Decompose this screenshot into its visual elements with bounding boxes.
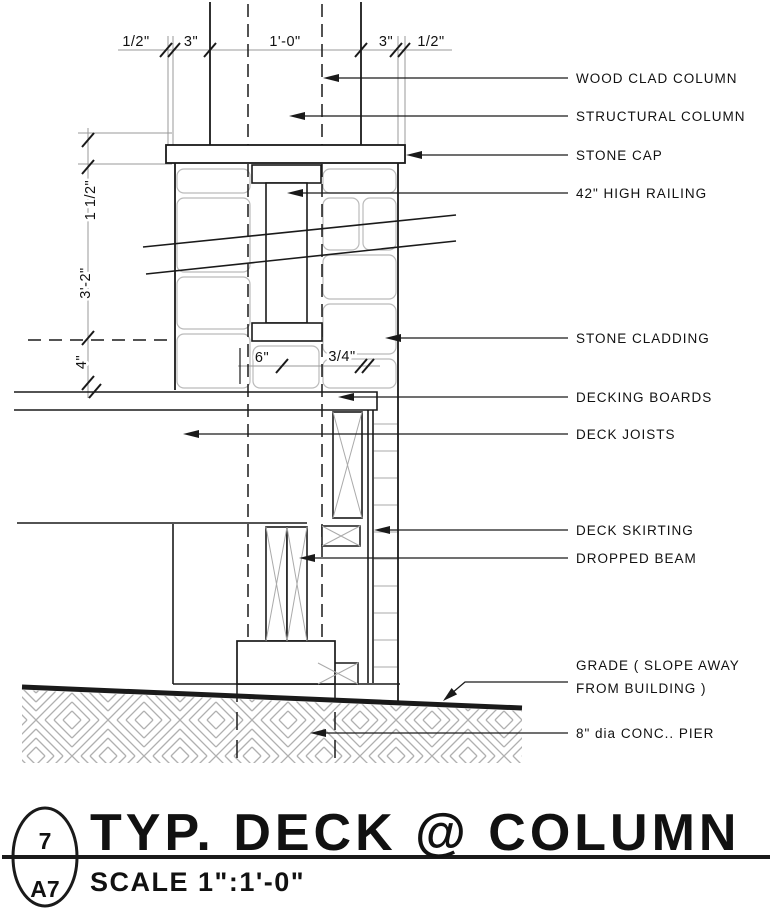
callout-conc-pier: 8" dia CONC.. PIER <box>576 726 714 741</box>
dim-left-four: 4" <box>74 355 90 369</box>
railing-post <box>266 183 307 323</box>
dim-top-three-right: 3" <box>379 34 393 50</box>
callout-wood-clad-column: WOOD CLAD COLUMN <box>576 71 738 86</box>
sheet-number: A7 <box>30 876 59 902</box>
callout-stone-cap: STONE CAP <box>576 148 663 163</box>
dim-top-half-inch-right: 1/2" <box>417 34 444 50</box>
callout-grade-line2: FROM BUILDING ) <box>576 681 707 696</box>
callout-dropped-beam: DROPPED BEAM <box>576 551 697 566</box>
stone-cap-section <box>166 145 405 163</box>
dim-mid-six: 6" <box>255 350 269 366</box>
drawing-scale: SCALE 1":1'-0" <box>90 867 305 897</box>
callout-deck-joists: DECK JOISTS <box>576 427 676 442</box>
railing-top-rail <box>252 165 321 183</box>
dim-left-three-two: 3'-2" <box>78 267 94 298</box>
dim-top-half-inch-left: 1/2" <box>122 34 149 50</box>
dimension-labels: 1/2" 3" 1'-0" 3" 1/2" 1 1/2" 3'-2" 4" 6"… <box>74 34 445 369</box>
dim-top-one-foot: 1'-0" <box>269 34 300 50</box>
callout-stone-cladding: STONE CLADDING <box>576 331 710 346</box>
callout-deck-skirting: DECK SKIRTING <box>576 523 694 538</box>
detail-number: 7 <box>39 828 52 854</box>
deck-column-detail-drawing: WOOD CLAD COLUMN STRUCTURAL COLUMN STONE… <box>0 0 773 914</box>
railing-base-plate <box>252 323 322 341</box>
concrete-pier <box>237 641 335 684</box>
structure <box>14 2 456 703</box>
callout-decking-boards: DECKING BOARDS <box>576 390 712 405</box>
dim-top-three-left: 3" <box>184 34 198 50</box>
callout-structural-column: STRUCTURAL COLUMN <box>576 109 746 124</box>
dim-left-one-half: 1 1/2" <box>83 180 99 220</box>
earth-hatch <box>22 690 522 763</box>
callout-labels: WOOD CLAD COLUMN STRUCTURAL COLUMN STONE… <box>576 71 746 741</box>
drawing-sheet: WOOD CLAD COLUMN STRUCTURAL COLUMN STONE… <box>0 0 773 914</box>
callout-grade-line1: GRADE ( SLOPE AWAY <box>576 658 740 673</box>
callout-high-railing: 42" HIGH RAILING <box>576 186 707 201</box>
drawing-title: TYP. DECK @ COLUMN <box>90 804 740 862</box>
dim-mid-three-quarter: 3/4" <box>328 349 355 365</box>
title-block: 7 A7 TYP. DECK @ COLUMN SCALE 1":1'-0" <box>2 804 770 906</box>
